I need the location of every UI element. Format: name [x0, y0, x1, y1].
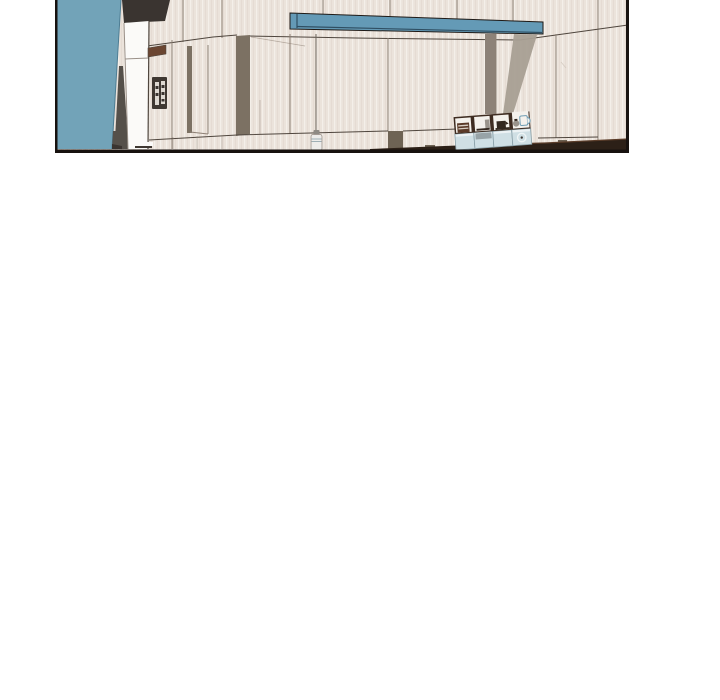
cabinet-gap-shadow [388, 131, 403, 150]
support-column [485, 34, 496, 114]
teal-accent-wall [56, 0, 130, 149]
drawer-insert [475, 132, 491, 139]
fridge-control-panel [152, 77, 167, 109]
cabinet-recess-dark [122, 0, 170, 23]
door-gap-shadow [187, 46, 192, 133]
page-background [0, 0, 720, 700]
step-stool [132, 142, 153, 149]
appliance-cubby-unit [453, 111, 531, 150]
slatted-appliance [457, 122, 470, 132]
corner-shadow-band [236, 35, 250, 136]
webtoon-panel-image [55, 0, 629, 153]
kitchen-scene [55, 0, 629, 153]
